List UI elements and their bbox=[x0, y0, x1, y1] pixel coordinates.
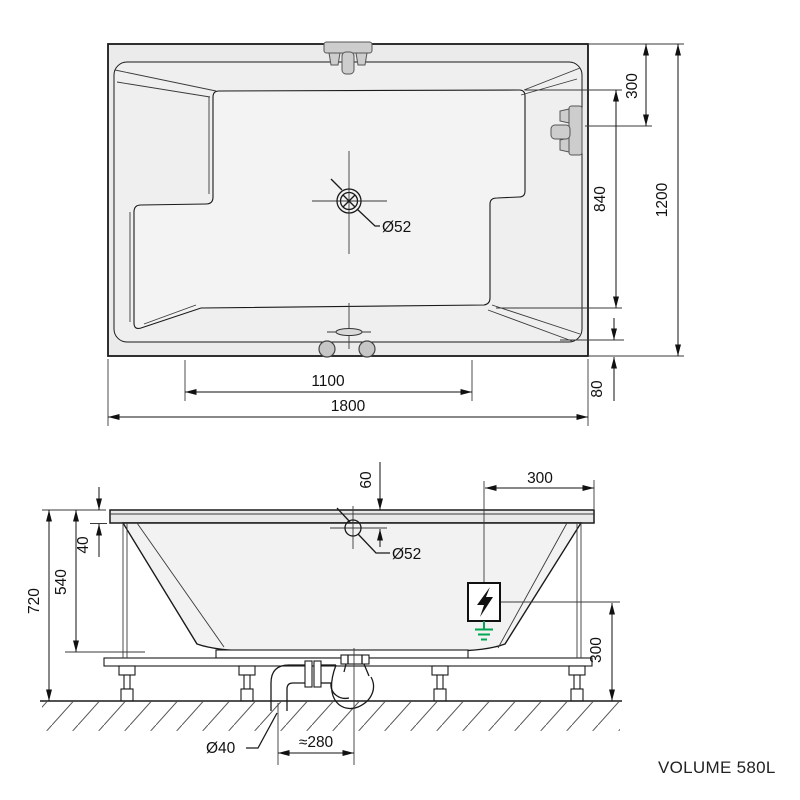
drain-diameter-label: Ø52 bbox=[382, 219, 411, 236]
rim-slab bbox=[110, 510, 594, 523]
top-view: Ø52 bbox=[108, 42, 684, 426]
control-button-right bbox=[359, 341, 375, 357]
dim-overall-width-label: 1200 bbox=[654, 182, 671, 217]
dim-inner-width-label: 840 bbox=[592, 186, 609, 212]
tub-cross-section bbox=[123, 523, 581, 651]
adjustable-feet bbox=[119, 666, 585, 701]
dim-overall-length-label: 1800 bbox=[331, 398, 366, 415]
dim-electric-height-label: 300 bbox=[588, 637, 605, 663]
dim-electric-from-edge-label: 300 bbox=[527, 470, 553, 487]
floor-hatching bbox=[42, 702, 620, 731]
volume-label: VOLUME 580L bbox=[658, 758, 776, 777]
side-view: Ø52 bbox=[26, 462, 622, 765]
dim-edge-offset-label: 80 bbox=[589, 380, 606, 398]
dim-fixture-from-edge-label: 300 bbox=[624, 73, 641, 99]
dim-overall-height-label: 720 bbox=[26, 588, 43, 614]
dim-inner-length-label: 1100 bbox=[311, 373, 345, 390]
overflow-diameter-label: Ø52 bbox=[392, 546, 421, 563]
dim-depth-label: 540 bbox=[53, 569, 70, 595]
drawing-svg: Ø52 bbox=[0, 0, 800, 800]
technical-drawing-page: Ø52 bbox=[0, 0, 800, 800]
waste-diameter-label: Ø40 bbox=[206, 740, 236, 757]
dim-waste-offset-label: ≈280 bbox=[299, 734, 334, 751]
dim-rim-thickness-label: 40 bbox=[75, 536, 92, 554]
dim-overflow-from-rim-label: 60 bbox=[358, 471, 375, 489]
control-button-left bbox=[319, 341, 335, 357]
